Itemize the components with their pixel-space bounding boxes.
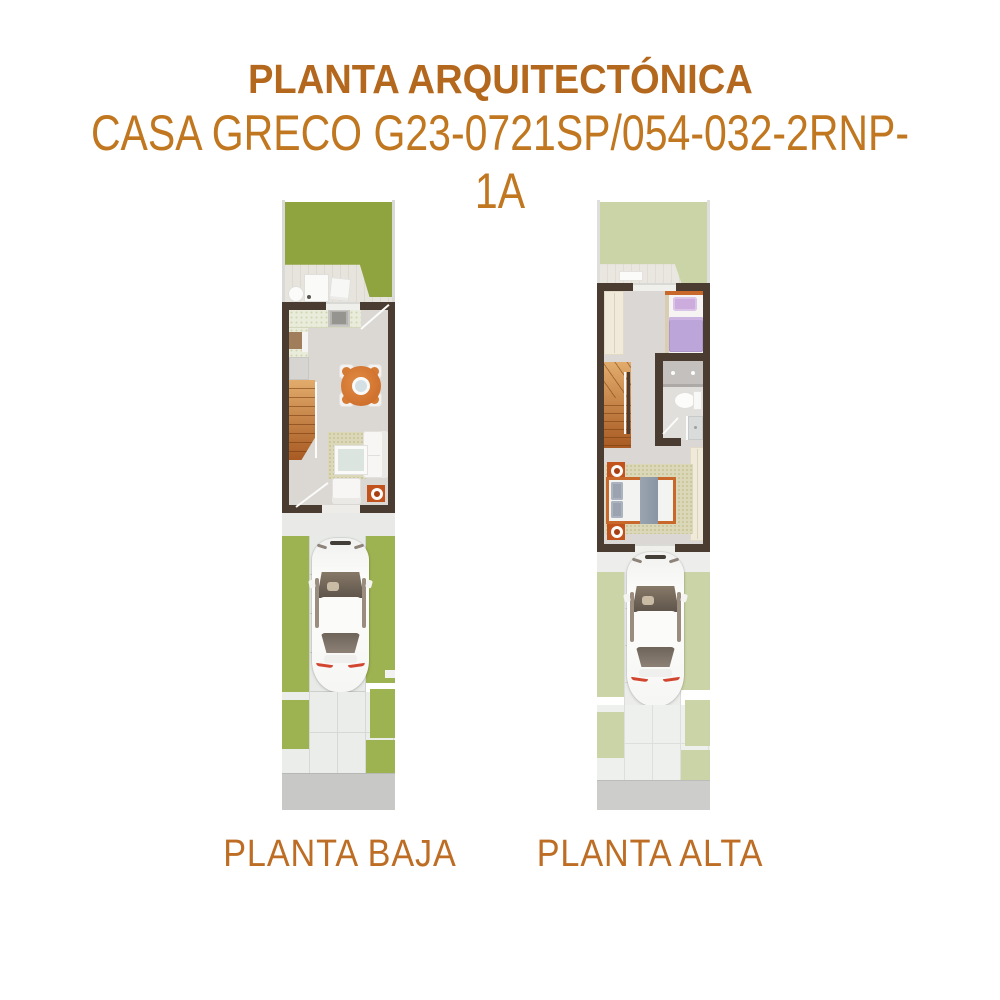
car-top-view [312, 538, 369, 692]
entrance-opening [322, 505, 360, 513]
refrigerator [289, 357, 309, 380]
kitchen-sink [302, 332, 308, 352]
floorplan-planta-baja [282, 200, 395, 810]
car-rear-window [321, 633, 360, 653]
coffee-table [335, 446, 367, 474]
car-grill [330, 541, 351, 545]
pillow [673, 297, 697, 311]
side-table [367, 485, 385, 502]
washing-machine [304, 274, 329, 302]
window-opening [635, 544, 675, 552]
page-title-text: PLANTA ARQUITECTÓNICA [248, 56, 753, 103]
stair-railing [624, 372, 626, 434]
planter [619, 271, 643, 281]
bed-runner [640, 477, 658, 524]
armchair [332, 478, 361, 504]
wall [703, 283, 710, 552]
laundry-appliance [329, 277, 351, 302]
bathroom-vanity [663, 361, 703, 387]
walkway-grass [370, 689, 395, 738]
bathroom-wall [655, 361, 663, 441]
label-planta-alta: PLANTA ALTA [524, 833, 776, 876]
wall [597, 283, 604, 552]
page-subtitle-text: CASA GRECO G23-0721SP/054-032-2RNP-1A [90, 104, 910, 220]
driveway-apron [282, 513, 395, 536]
car-trunk [324, 655, 357, 663]
label-planta-alta-text: PLANTA ALTA [537, 833, 764, 876]
bathroom-wall [655, 438, 681, 446]
walkway-grass-faded [597, 712, 624, 758]
wall [282, 302, 289, 513]
side-fence [392, 200, 395, 302]
car-roof [634, 611, 677, 647]
curb-mark [385, 670, 395, 678]
front-yard-grass-faded [597, 572, 624, 697]
wall [388, 302, 395, 513]
car-windshield [632, 586, 679, 612]
walkway-grass [366, 740, 395, 773]
car-seat [327, 582, 339, 591]
sidewalk-faded [597, 780, 710, 810]
label-planta-baja-text: PLANTA BAJA [223, 833, 457, 876]
car-windshield [317, 572, 364, 598]
walkway-grass-faded [681, 750, 710, 780]
closet [604, 291, 624, 355]
sidewalk [282, 773, 395, 810]
label-planta-baja: PLANTA BAJA [210, 833, 470, 876]
car-rear-window [636, 647, 675, 667]
page-subtitle: CASA GRECO G23-0721SP/054-032-2RNP-1A [0, 104, 1000, 220]
walkway-grass [282, 700, 309, 749]
dining-table [341, 366, 381, 406]
kitchen-sink-cabinet [289, 332, 302, 349]
kitchen-counter [289, 310, 361, 328]
car-seat [642, 596, 654, 605]
shower-glass [686, 416, 688, 440]
front-yard-grass [282, 536, 309, 692]
shower [688, 416, 703, 440]
nightstand [607, 523, 625, 540]
water-heater [288, 286, 304, 302]
car-grill [645, 555, 666, 559]
wall [655, 353, 710, 361]
floorplan-planta-alta [597, 200, 710, 810]
toilet [675, 393, 695, 408]
patio-sliding-door [326, 302, 360, 310]
car-top-view [627, 552, 684, 706]
purple-duvet [669, 317, 703, 352]
car-trunk [639, 669, 672, 677]
front-yard-grass-faded [681, 572, 710, 690]
stair-railing [627, 372, 630, 434]
walkway-grass-faded [685, 700, 710, 746]
car-roof [319, 597, 362, 633]
toilet-tank [693, 391, 702, 410]
poster-canvas: PLANTA ARQUITECTÓNICA CASA GRECO G23-072… [0, 0, 1000, 1000]
stove [328, 309, 350, 327]
window-opening [633, 283, 676, 291]
pillow [611, 482, 623, 500]
side-fence [707, 200, 710, 284]
pillow [611, 501, 623, 518]
stair-railing [315, 382, 317, 458]
page-title: PLANTA ARQUITECTÓNICA [0, 56, 1000, 103]
front-yard-grass [366, 536, 395, 683]
